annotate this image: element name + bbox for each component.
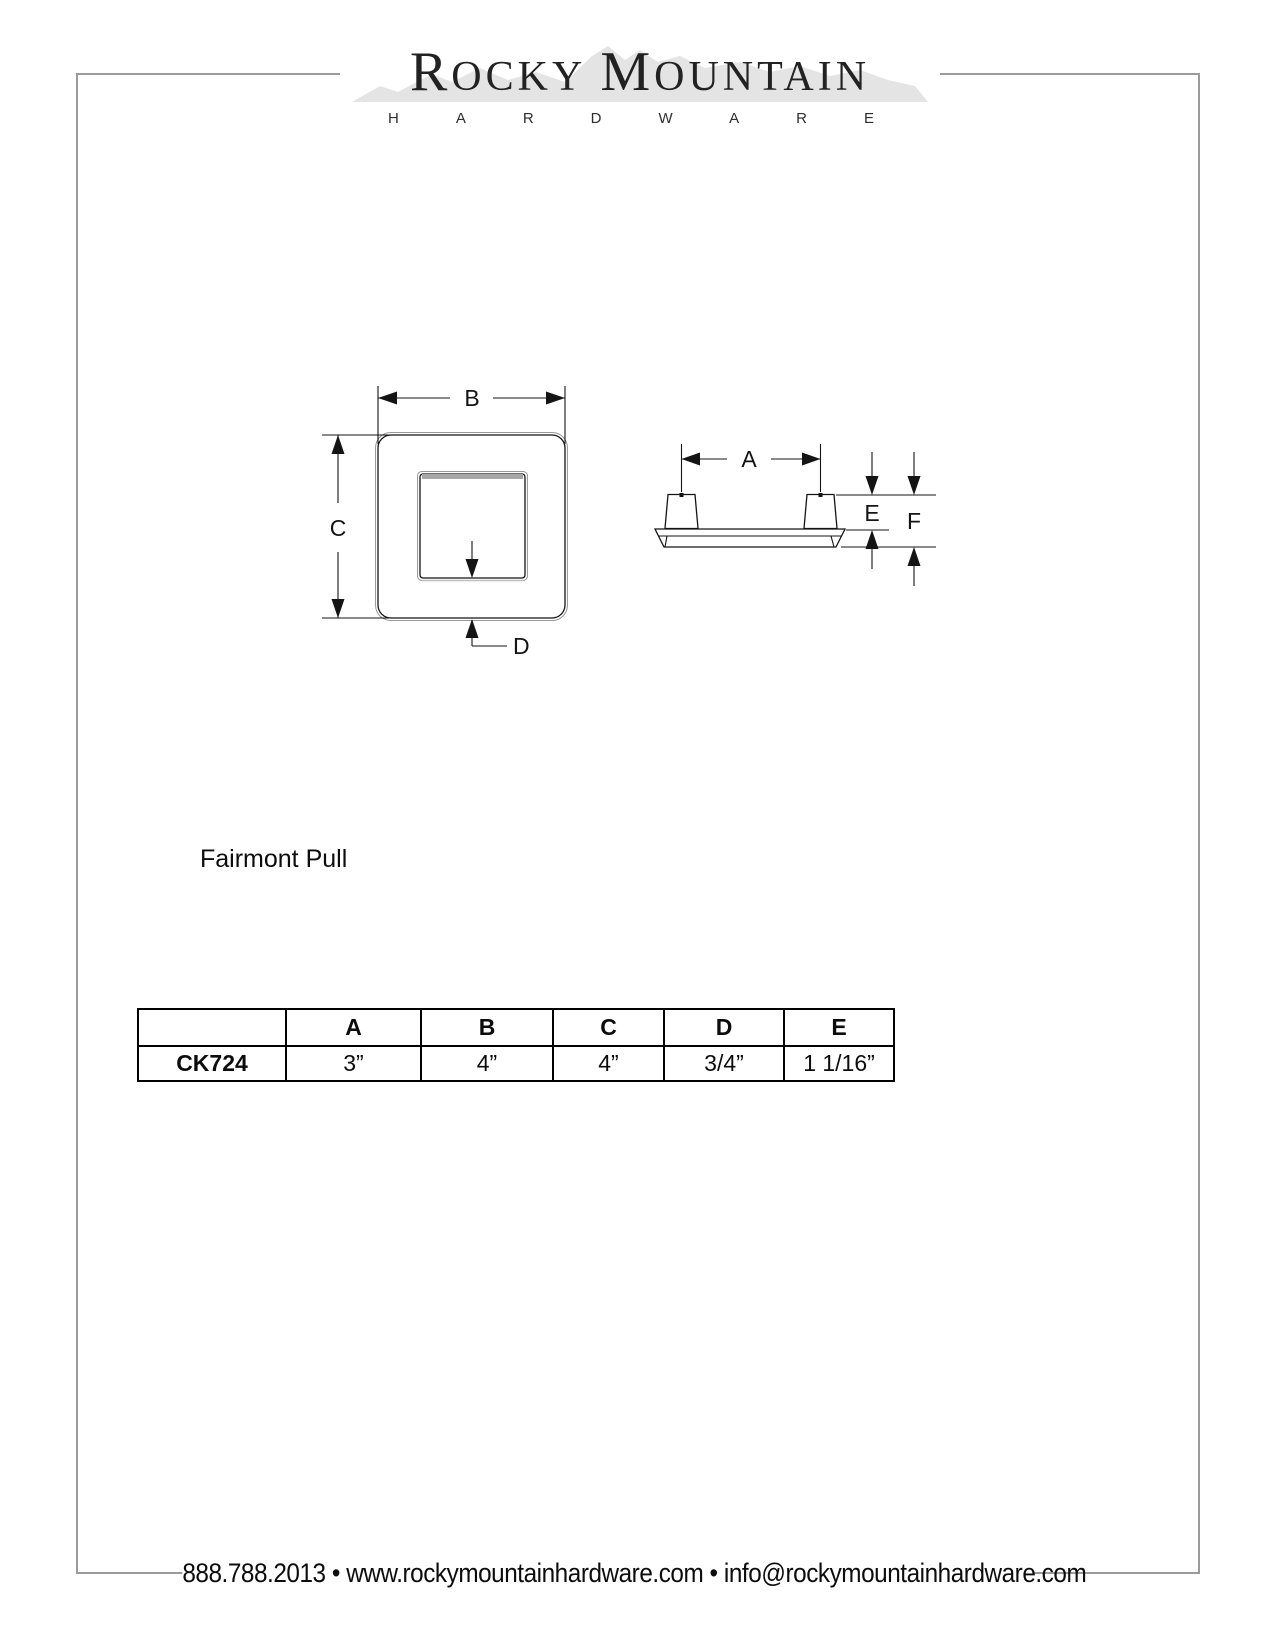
- dim-label-c: C: [330, 515, 347, 541]
- dim-e-f: E F: [836, 452, 936, 586]
- dim-label-d: D: [513, 633, 530, 659]
- cell-model: CK724: [138, 1046, 286, 1081]
- header-model: [138, 1009, 286, 1046]
- header-c: C: [553, 1009, 664, 1046]
- spec-table: A B C D E CK724 3” 4” 4” 3/4” 1 1/16”: [137, 1008, 895, 1082]
- cell-c: 4”: [553, 1046, 664, 1081]
- spec-table-data-row: CK724 3” 4” 4” 3/4” 1 1/16”: [138, 1046, 894, 1081]
- spec-table-header-row: A B C D E: [138, 1009, 894, 1046]
- header-e: E: [784, 1009, 894, 1046]
- cell-d: 3/4”: [664, 1046, 784, 1081]
- footer-contact: 888.788.2013 • www.rockymountainhardware…: [182, 1556, 1034, 1591]
- right-post: [804, 495, 837, 529]
- side-view: A E F: [655, 444, 936, 586]
- cell-a: 3”: [286, 1046, 421, 1081]
- header-a: A: [286, 1009, 421, 1046]
- dim-label-f: F: [907, 508, 921, 534]
- front-view: B C D: [322, 385, 567, 659]
- cell-b: 4”: [421, 1046, 553, 1081]
- left-post: [665, 495, 698, 529]
- cell-e: 1 1/16”: [784, 1046, 894, 1081]
- product-name: Fairmont Pull: [200, 845, 347, 874]
- dim-label-b: B: [464, 385, 479, 411]
- dim-d: D: [466, 619, 530, 659]
- header-b: B: [421, 1009, 553, 1046]
- technical-drawing: B C D: [0, 0, 1275, 1650]
- dim-a: A: [682, 444, 821, 492]
- header-d: D: [664, 1009, 784, 1046]
- dim-label-a: A: [741, 446, 757, 472]
- base-plate: [655, 529, 845, 547]
- dim-label-e: E: [864, 500, 879, 526]
